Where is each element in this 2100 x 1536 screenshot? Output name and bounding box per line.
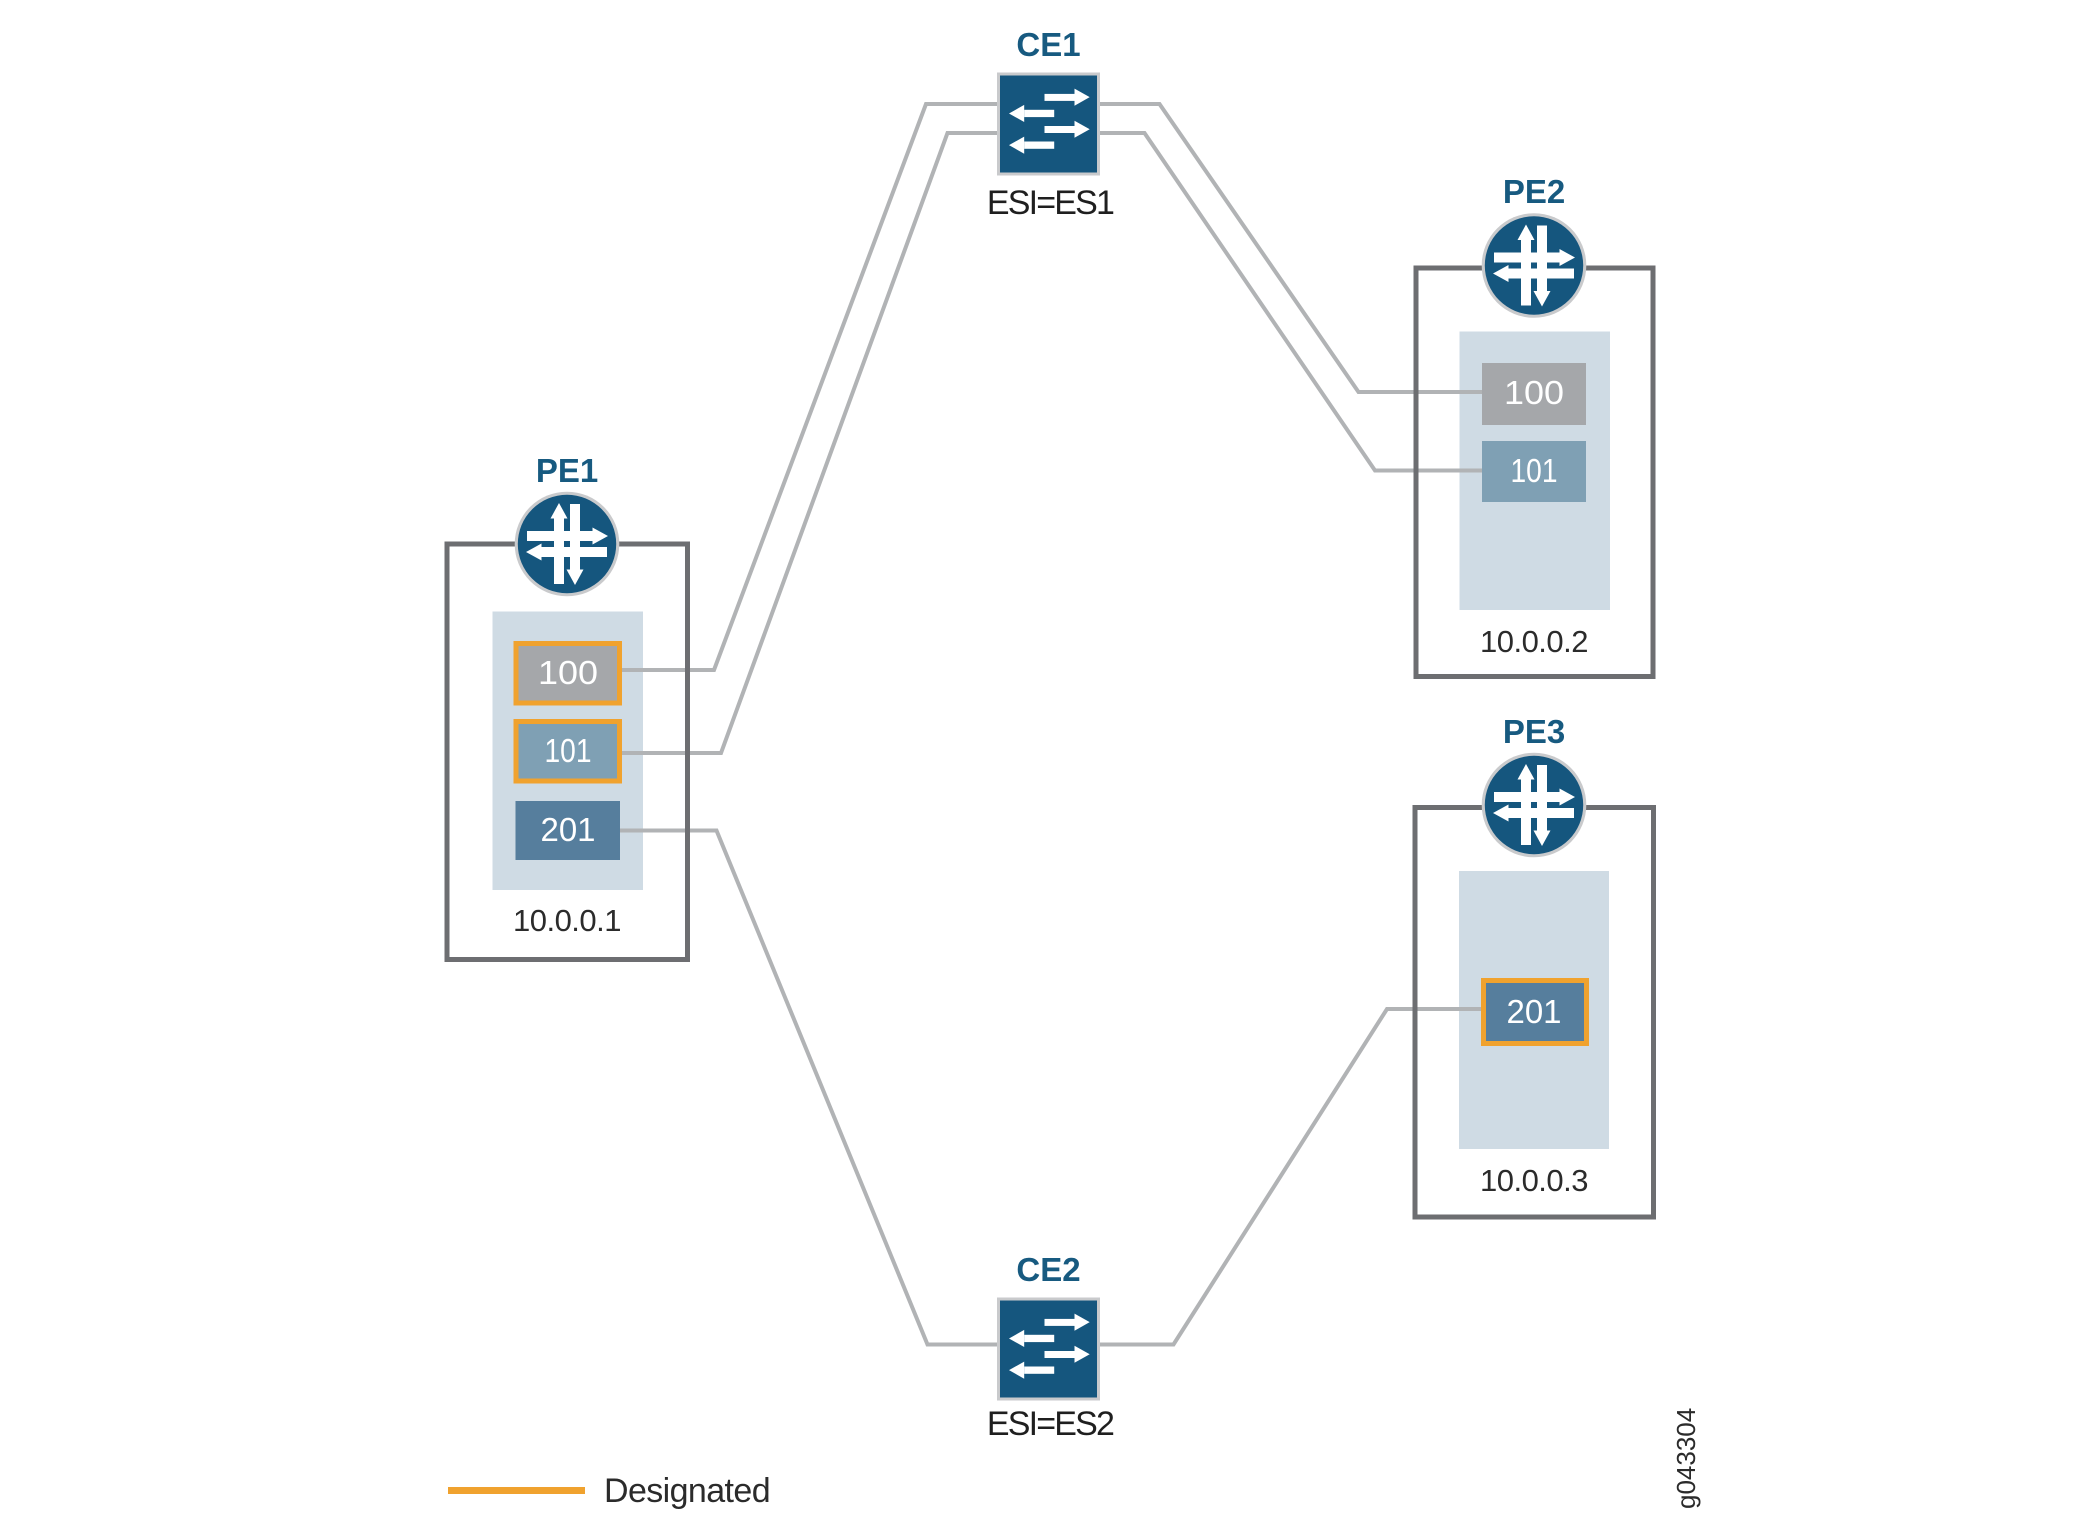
svg-text:CE2: CE2	[1016, 1251, 1080, 1288]
svg-text:10.0.0.3: 10.0.0.3	[1480, 1163, 1588, 1198]
svg-text:PE3: PE3	[1503, 713, 1565, 750]
svg-text:Designated: Designated	[604, 1472, 770, 1510]
svg-text:201: 201	[541, 811, 596, 848]
svg-text:100: 100	[1504, 374, 1564, 411]
svg-text:PE1: PE1	[536, 452, 598, 489]
svg-text:201: 201	[1507, 993, 1562, 1030]
svg-text:101: 101	[545, 732, 592, 769]
svg-text:CE1: CE1	[1016, 26, 1080, 63]
svg-text:PE2: PE2	[1503, 173, 1565, 210]
svg-text:10.0.0.2: 10.0.0.2	[1480, 624, 1588, 659]
svg-text:g043304: g043304	[1671, 1408, 1701, 1509]
svg-text:ESI=ES1: ESI=ES1	[987, 184, 1114, 222]
svg-text:ESI=ES2: ESI=ES2	[987, 1405, 1114, 1443]
svg-text:101: 101	[1511, 452, 1558, 489]
svg-text:100: 100	[538, 654, 598, 691]
svg-text:10.0.0.1: 10.0.0.1	[513, 903, 621, 938]
